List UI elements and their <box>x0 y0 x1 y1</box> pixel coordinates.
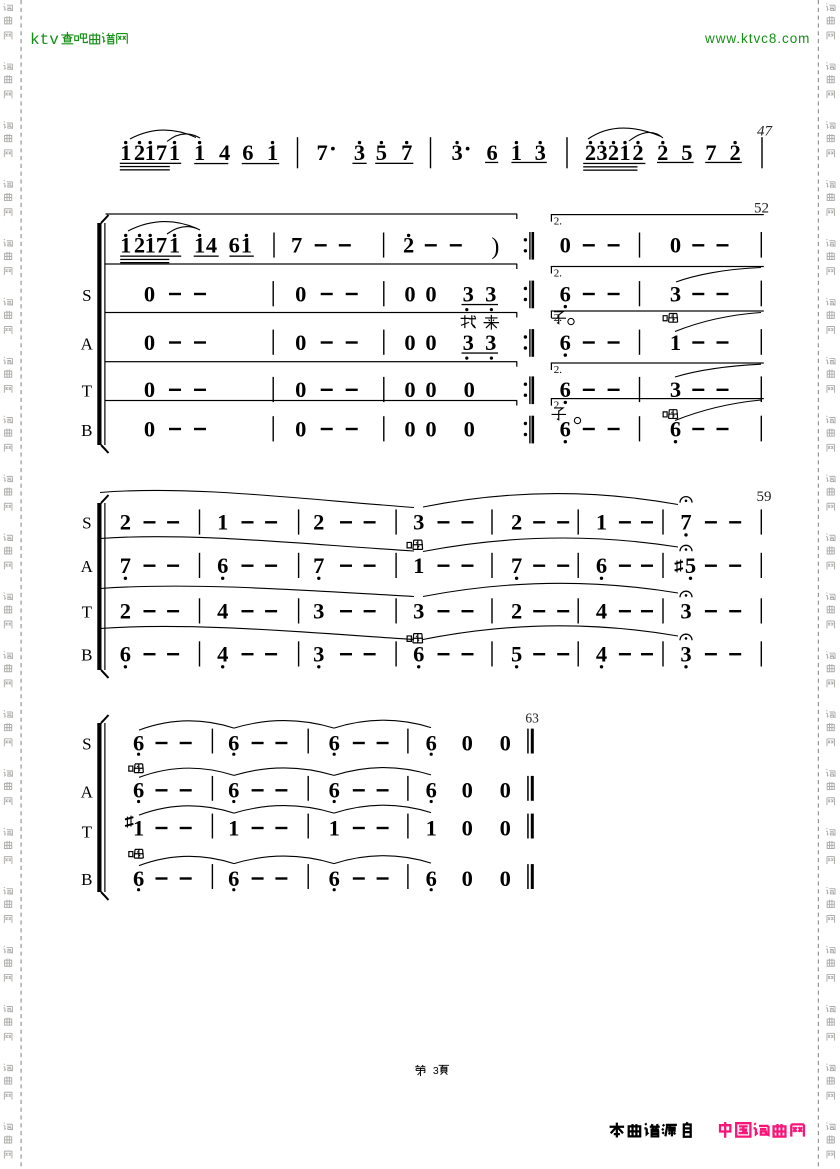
svg-text:0: 0 <box>462 778 473 803</box>
svg-text:6: 6 <box>133 778 144 803</box>
svg-text:A: A <box>81 557 94 576</box>
svg-text:1: 1 <box>426 815 437 840</box>
svg-text:52: 52 <box>754 201 769 217</box>
svg-text:0: 0 <box>404 330 415 355</box>
svg-text:0: 0 <box>462 815 473 840</box>
svg-text:4: 4 <box>596 642 607 667</box>
svg-text:3: 3 <box>413 510 424 535</box>
svg-text:0: 0 <box>425 330 436 355</box>
svg-text:4: 4 <box>217 642 228 667</box>
svg-text:1: 1 <box>413 553 424 578</box>
svg-text:6: 6 <box>426 730 437 755</box>
svg-text:7: 7 <box>156 140 167 165</box>
svg-text:0: 0 <box>404 377 415 402</box>
svg-text:3: 3 <box>485 330 496 355</box>
svg-text:0: 0 <box>670 233 681 258</box>
svg-text:3: 3 <box>313 599 324 624</box>
svg-text:6: 6 <box>560 281 571 306</box>
svg-text:ktv: ktv <box>30 31 59 49</box>
svg-text:1: 1 <box>670 330 681 355</box>
svg-text:0: 0 <box>425 416 436 441</box>
svg-text:B: B <box>81 870 92 889</box>
svg-text:47: 47 <box>757 124 774 140</box>
svg-text:6: 6 <box>133 730 144 755</box>
svg-text:5: 5 <box>685 553 696 578</box>
svg-text:0: 0 <box>560 233 571 258</box>
svg-text:6: 6 <box>120 642 131 667</box>
svg-text:1: 1 <box>133 815 144 840</box>
svg-text:6: 6 <box>426 866 437 891</box>
svg-text:6: 6 <box>329 778 340 803</box>
svg-text:1: 1 <box>329 815 340 840</box>
svg-text:7: 7 <box>511 553 522 578</box>
svg-text:3: 3 <box>313 642 324 667</box>
svg-text:6: 6 <box>596 553 607 578</box>
svg-text:6: 6 <box>133 866 144 891</box>
svg-text:7: 7 <box>316 140 327 165</box>
svg-text:7: 7 <box>680 510 691 535</box>
svg-text:3: 3 <box>463 281 474 306</box>
svg-text:3: 3 <box>680 642 691 667</box>
svg-text:0: 0 <box>500 778 511 803</box>
svg-text:T: T <box>82 603 93 622</box>
svg-text:6: 6 <box>228 730 239 755</box>
svg-text:B: B <box>81 646 92 665</box>
svg-text:2: 2 <box>511 510 522 535</box>
svg-text:7: 7 <box>291 233 302 258</box>
svg-text:B: B <box>81 421 92 440</box>
svg-text:0: 0 <box>404 281 415 306</box>
svg-text:4: 4 <box>596 599 607 624</box>
svg-text:0: 0 <box>144 377 155 402</box>
svg-text:6: 6 <box>560 330 571 355</box>
svg-text:0: 0 <box>462 866 473 891</box>
svg-text:T: T <box>82 822 93 841</box>
svg-text:6: 6 <box>486 140 497 165</box>
svg-text:6: 6 <box>426 778 437 803</box>
svg-text:3: 3 <box>413 599 424 624</box>
svg-text:6: 6 <box>228 866 239 891</box>
svg-text:4: 4 <box>219 140 230 165</box>
svg-text:0: 0 <box>295 281 306 306</box>
svg-text:7: 7 <box>120 553 131 578</box>
svg-text:0: 0 <box>500 815 511 840</box>
svg-text:6: 6 <box>228 778 239 803</box>
svg-text:6: 6 <box>560 416 571 441</box>
svg-text:2.: 2. <box>554 215 563 227</box>
svg-text:2.: 2. <box>554 267 563 279</box>
svg-text:2: 2 <box>313 510 324 535</box>
svg-text:0: 0 <box>500 866 511 891</box>
svg-text:3: 3 <box>463 330 474 355</box>
svg-text:1: 1 <box>217 510 228 535</box>
svg-text:0: 0 <box>464 377 475 402</box>
svg-text:0: 0 <box>425 377 436 402</box>
svg-text:0: 0 <box>500 730 511 755</box>
svg-text:0: 0 <box>295 416 306 441</box>
svg-text:63: 63 <box>525 711 539 726</box>
svg-text:6: 6 <box>413 642 424 667</box>
svg-text:5: 5 <box>511 642 522 667</box>
svg-text:0: 0 <box>462 730 473 755</box>
svg-text:0: 0 <box>295 330 306 355</box>
svg-text:S: S <box>82 286 91 305</box>
svg-text:6: 6 <box>560 377 571 402</box>
svg-text:4: 4 <box>206 233 217 258</box>
svg-text:59: 59 <box>757 489 772 505</box>
svg-text:S: S <box>82 514 91 533</box>
svg-text:): ) <box>491 234 499 260</box>
svg-text:0: 0 <box>144 281 155 306</box>
svg-text:1: 1 <box>228 815 239 840</box>
svg-text:A: A <box>81 334 94 353</box>
svg-text:4: 4 <box>217 599 228 624</box>
svg-text:2: 2 <box>120 510 131 535</box>
svg-text:1: 1 <box>596 510 607 535</box>
svg-text:6: 6 <box>217 553 228 578</box>
svg-text:2: 2 <box>120 599 131 624</box>
svg-text:3: 3 <box>670 281 681 306</box>
svg-text:3: 3 <box>485 281 496 306</box>
svg-text:www.ktvc8.com: www.ktvc8.com <box>704 31 810 46</box>
svg-text:0: 0 <box>464 416 475 441</box>
svg-text:A: A <box>81 783 94 802</box>
svg-text:2.: 2. <box>554 364 563 376</box>
svg-text:6: 6 <box>329 866 340 891</box>
svg-text:0: 0 <box>144 416 155 441</box>
svg-text:S: S <box>82 735 91 754</box>
svg-text:0: 0 <box>144 330 155 355</box>
svg-text:6: 6 <box>329 730 340 755</box>
svg-text:6: 6 <box>242 140 253 165</box>
svg-text:0: 0 <box>404 416 415 441</box>
svg-text:3: 3 <box>670 377 681 402</box>
svg-text:0: 0 <box>425 281 436 306</box>
svg-text:5: 5 <box>681 140 692 165</box>
svg-text:7: 7 <box>313 553 324 578</box>
svg-text:7: 7 <box>156 233 167 258</box>
svg-text:3: 3 <box>680 599 691 624</box>
svg-text:2: 2 <box>511 599 522 624</box>
svg-text:T: T <box>82 382 93 401</box>
svg-text:0: 0 <box>295 377 306 402</box>
svg-text:7: 7 <box>705 140 716 165</box>
svg-text:3: 3 <box>433 1065 439 1077</box>
svg-text:6: 6 <box>229 233 240 258</box>
